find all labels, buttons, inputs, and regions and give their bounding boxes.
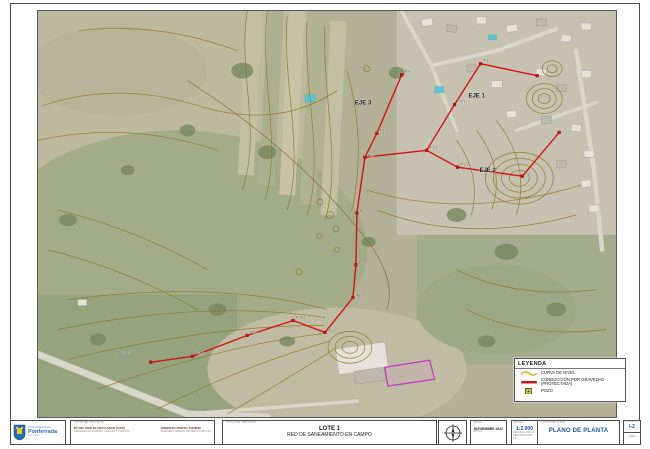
manhole-node: [324, 331, 327, 334]
manhole-node: [453, 103, 456, 106]
orthophoto-map: P-1P-2-1P-3-1P-2-2P-2P-4P-1-1PL-1PG-1PT-…: [38, 11, 616, 417]
manhole-node: [246, 334, 249, 337]
map-viewport: P-1P-2-1P-3-1P-2-2P-2P-4P-1-1PL-1PG-1PT-…: [37, 10, 617, 418]
manhole-node: [521, 175, 524, 178]
plan-title-cell: TÍTULO DEL PLANO PLANO DE PLANTA: [538, 421, 619, 444]
manhole-node: [375, 132, 378, 135]
author-left: Mª DEL MAR BLANCO ABAD (ICCP) INGENIERA …: [74, 427, 130, 433]
legend-title: LEYENDA: [515, 359, 625, 369]
node-label: PG-1: [360, 209, 368, 213]
date-label: FECHA: [473, 422, 504, 425]
logo-texts: AYUNTAMIENTO DE Ponferrada es ciudad: [28, 427, 57, 438]
legend-item-contour: CURVA DE NIVEL: [515, 369, 625, 377]
sheet-number-top: PLANO Nº I-2: [624, 421, 640, 433]
node-label: P-2-2: [461, 163, 469, 167]
axis-label: EJE 3: [355, 101, 372, 107]
node-label: PT-2: [359, 261, 366, 265]
sheet-number-box: PLANO Nº I-2 1 de 1: [623, 420, 641, 445]
author-right: ROBERTO PRIETO TORIBIO INGENIERO TÉCNICO…: [161, 427, 211, 433]
manhole-node: [363, 156, 366, 159]
project-title-label: TÍTULO DEL PROYECTO: [226, 422, 433, 425]
manhole-node: [292, 319, 295, 322]
node-label: P-3-1: [430, 145, 438, 149]
date-box: FECHA NOVIEMBRE 2022 DIN A-3: [470, 420, 507, 445]
manhole-node: [352, 296, 355, 299]
legend-item-label: POZO: [541, 389, 553, 393]
node-label: P-2: [525, 172, 530, 176]
scale-and-plan-box: ESCALA 1:2.000 ORIGINAL DIN-A1 REDUCIDO …: [511, 420, 620, 445]
node-label: PL-1: [368, 153, 375, 157]
node-label: PS-2: [250, 330, 257, 334]
north-arrow-box: N: [438, 420, 467, 445]
manhole-node: [479, 62, 482, 65]
node-label: PG-2: [328, 328, 336, 332]
axis-label: EJE 2: [479, 168, 496, 174]
author-left-title: INGENIERA DE CAMINOS, CANALES Y PUERTOS: [74, 431, 130, 434]
legend-item-label: CONDUCCIÓN POR GRAVEDAD (PROYECTADA): [541, 378, 622, 387]
manhole-node: [425, 149, 428, 152]
logo-org-suffix: es ciudad: [28, 435, 57, 438]
scale-cell: ESCALA 1:2.000 ORIGINAL DIN-A1 REDUCIDO …: [512, 421, 538, 444]
drawing-sheet: P-1P-2-1P-3-1P-2-2P-2P-4P-1-1PL-1PG-1PT-…: [0, 0, 650, 449]
legend-item-label: CURVA DE NIVEL: [541, 371, 575, 375]
manhole-node: [536, 74, 539, 77]
manhole-node: [149, 361, 152, 364]
sheet-number-value: I-2: [624, 424, 640, 431]
authors-label: AUTOR DEL PROYECTO:: [74, 422, 211, 425]
node-label: P-4: [405, 70, 410, 74]
authors-box: AUTOR DEL PROYECTO: Mª DEL MAR BLANCO AB…: [70, 420, 215, 445]
legend-item-manhole: POZO: [515, 387, 625, 395]
north-arrow-icon: N: [443, 423, 463, 443]
node-label: P-1: [483, 59, 488, 63]
node-label: P-1-1: [380, 128, 388, 132]
node-label: P-1-PS: [195, 351, 205, 355]
date-sub: DIN A-3: [473, 431, 504, 434]
project-name: RED DE SANEAMIENTO EN CAMPO: [226, 432, 433, 438]
axis-label: EJE 1: [469, 94, 486, 100]
manhole-node: [400, 73, 403, 76]
node-label: P-2-1: [458, 100, 466, 104]
manhole-node: [356, 212, 359, 215]
project-title-box: TÍTULO DEL PROYECTO LOTE 1 RED DE SANEAM…: [222, 420, 437, 445]
scale-label: ESCALA: [513, 422, 536, 425]
manhole-node: [558, 131, 561, 134]
sheet-page-count: 1 de 1: [624, 433, 640, 438]
manhole-symbol: [520, 388, 538, 395]
plan-title-label: TÍTULO DEL PLANO: [541, 422, 616, 425]
ponferrada-crest-icon: [13, 424, 26, 441]
node-label: P-10-1: [296, 315, 306, 319]
legend-item-pipe: CONDUCCIÓN POR GRAVEDAD (PROYECTADA): [515, 377, 625, 387]
scale-sub2: REDUCIDO DIN-A3: [513, 435, 536, 441]
manhole-node: [191, 355, 194, 358]
authors-columns: Mª DEL MAR BLANCO ABAD (ICCP) INGENIERA …: [74, 427, 211, 433]
manhole-node: [456, 166, 459, 169]
manhole-node: [355, 263, 358, 266]
node-label: PB-1: [356, 294, 363, 298]
legend-box: LEYENDA CURVA DE NIVEL CONDUCCIÓN POR GR…: [514, 358, 626, 402]
author-right-title: INGENIERO TÉCNICO DE OBRAS PÚBLICAS: [161, 431, 211, 434]
municipality-logo-box: AYUNTAMIENTO DE Ponferrada es ciudad: [10, 420, 66, 445]
node-label: P existente: [118, 350, 134, 354]
svg-text:N: N: [451, 430, 454, 435]
plan-title-value: PLANO DE PLANTA: [541, 428, 616, 434]
gravity-pipe-symbol: [520, 380, 538, 385]
contour-line-symbol: [520, 370, 538, 377]
